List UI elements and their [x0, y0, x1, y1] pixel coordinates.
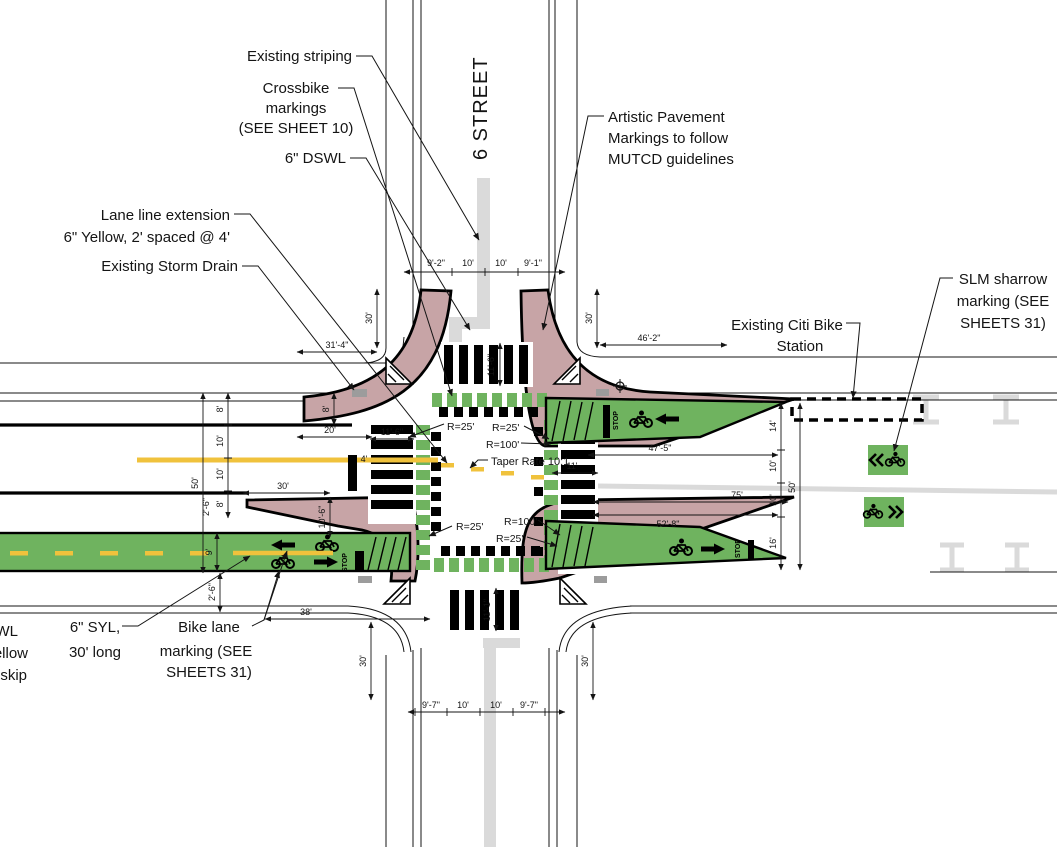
- callout-citi-bike: Station: [777, 338, 824, 355]
- edge-cutoff-text: skip: [0, 667, 27, 684]
- dim-label: 30': [580, 655, 590, 667]
- callout-crossbike: markings: [266, 100, 327, 117]
- callout-slm-sharrow: marking (SEE: [957, 293, 1050, 310]
- dim-label: 4': [361, 454, 368, 464]
- street-name-label: 6 STREET: [470, 56, 492, 160]
- south-crossbike: [434, 546, 549, 572]
- stop-marking: STOP: [735, 539, 742, 558]
- callout-slm-sharrow: SLM sharrow: [959, 271, 1048, 288]
- intersection-plan-drawing: STOP STOP STOP 9'-2" 10' 10' 9'-1": [0, 0, 1057, 847]
- callout-artistic: Markings to follow: [608, 130, 728, 147]
- dim-label: 10': [768, 494, 778, 506]
- callout-lane-line-extension: Lane line extension: [101, 207, 230, 224]
- callout-storm-drain: Existing Storm Drain: [101, 258, 238, 275]
- callout-crossbike: Crossbike: [263, 80, 330, 97]
- radius-label: R=25': [447, 421, 474, 433]
- dim-label: 50': [787, 481, 797, 493]
- north-crossbike: [432, 393, 547, 417]
- callout-artistic: MUTCD guidelines: [608, 151, 734, 168]
- dim-label: 10': [215, 468, 225, 480]
- existing-parking-tees: [913, 397, 1029, 570]
- west-crossbike: [416, 425, 441, 570]
- stop-bar: [748, 540, 754, 560]
- dim-label: 10'-6": [317, 506, 327, 529]
- dim-label: 30': [277, 481, 289, 491]
- dim-label: 11'-6": [486, 354, 496, 376]
- stop-bar: [603, 405, 610, 438]
- radius-label: R=100': [486, 439, 519, 451]
- se-ramp: [560, 578, 586, 604]
- edge-cutoff-text: ellow: [0, 645, 28, 662]
- stop-marking: STOP: [342, 553, 349, 572]
- dim-label: 9': [204, 548, 214, 555]
- callout-syl: 6" SYL,: [70, 619, 120, 636]
- radius-label: R=25': [496, 533, 523, 545]
- dim-label: 10': [215, 435, 225, 447]
- dim-label: 8': [215, 405, 225, 412]
- lane-line-end-bar: [348, 455, 357, 491]
- dim-label: 16': [768, 537, 778, 549]
- dim-label: 10': [495, 258, 507, 268]
- dim-label: 8': [215, 500, 225, 507]
- dim-label: 9'-1": [524, 258, 542, 268]
- callout-citi-bike: Existing Citi Bike: [731, 317, 843, 334]
- dim-label: 10': [462, 258, 474, 268]
- street-lines: [0, 0, 1057, 847]
- dim-label: 10': [457, 700, 469, 710]
- callout-slm-sharrow: SHEETS 31): [960, 315, 1046, 332]
- dim-label: 10': [490, 700, 502, 710]
- callout-artistic: Artistic Pavement: [608, 109, 726, 126]
- callout-lane-line-extension: 6" Yellow, 2' spaced @ 4': [64, 229, 231, 246]
- dim-label: 11'-1": [482, 599, 492, 621]
- edge-cutoff-text: WL: [0, 623, 18, 640]
- dim-label: 30': [358, 655, 368, 667]
- dim-label: 75': [731, 490, 743, 500]
- callout-bike-lane-marking: marking (SEE: [160, 643, 253, 660]
- dim-label: 50': [190, 477, 200, 489]
- dim-label: 9'-7": [520, 700, 538, 710]
- dim-label: 46'-2": [638, 333, 661, 343]
- dim-label: 20': [324, 425, 336, 435]
- callout-existing-striping: Existing striping: [247, 48, 352, 65]
- dim-label: 38': [300, 607, 312, 617]
- radius-label: R=25': [456, 521, 483, 533]
- radius-label: R=25': [492, 422, 519, 434]
- dim-label: 8': [321, 405, 331, 412]
- dim-label: 2'-6": [207, 583, 217, 601]
- callout-dswl: 6" DSWL: [285, 150, 346, 167]
- callout-syl: 30' long: [69, 644, 121, 661]
- radius-label: R=100': [504, 516, 537, 528]
- dim-label: 14': [768, 420, 778, 432]
- dim-label: 10': [768, 460, 778, 472]
- callout-bike-lane-marking: Bike lane: [178, 619, 240, 636]
- dim-label: 52'-8": [657, 519, 680, 529]
- callout-bike-lane-marking: SHEETS 31): [166, 664, 252, 681]
- dim-label: 31'-4": [326, 340, 349, 350]
- dim-label: 2'-6": [201, 498, 211, 516]
- dim-label: 30': [364, 312, 374, 324]
- stop-marking: STOP: [613, 411, 620, 430]
- callout-crossbike: (SEE SHEET 10): [239, 120, 354, 137]
- callout-taper-rate: Taper Rate 10:1: [491, 456, 569, 468]
- dim-label: 11'-6": [381, 427, 403, 437]
- citi-bike-station-outline: [792, 399, 922, 420]
- dim-label: 9'-7": [422, 700, 440, 710]
- stop-bar: [355, 551, 364, 571]
- dim-label: 30': [584, 312, 594, 324]
- dim-label: 47'-5": [649, 443, 672, 453]
- plan-svg: STOP STOP STOP 9'-2" 10' 10' 9'-1": [0, 0, 1057, 847]
